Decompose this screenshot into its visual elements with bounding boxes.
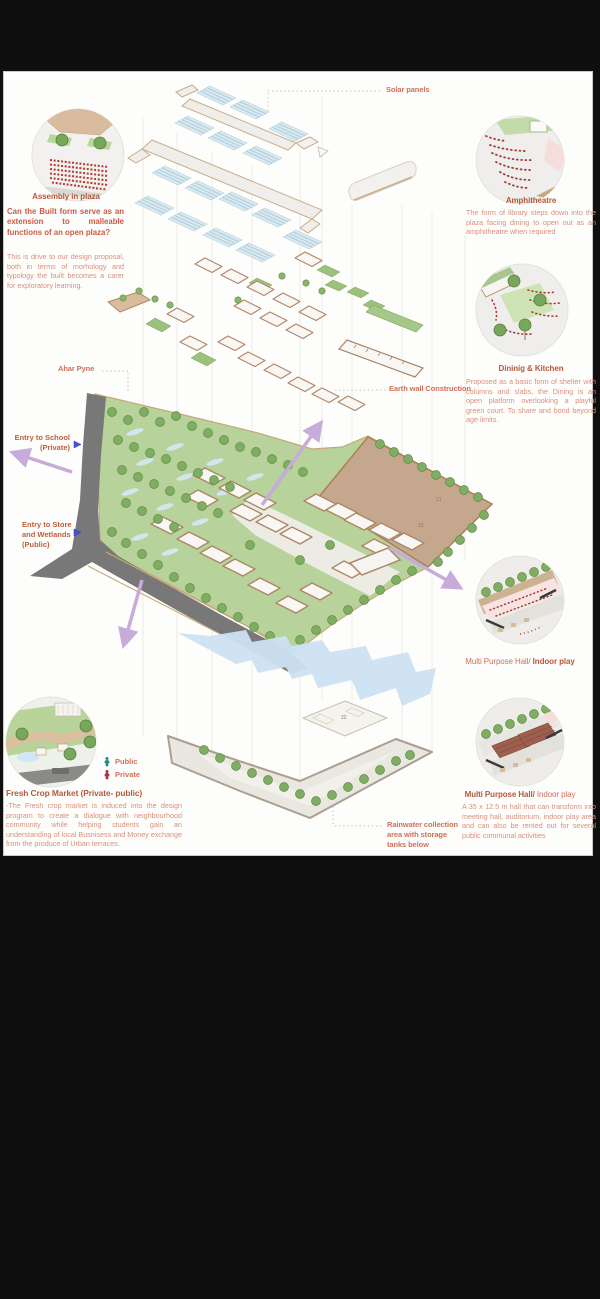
assembly-question: Can the Built form serve as an extension… — [7, 207, 124, 238]
earth-wall-label: Earth wall Construction — [389, 384, 471, 394]
vignette-dining — [476, 264, 568, 356]
mph-top-caption-bold: Indoor play — [531, 657, 575, 666]
ahar-pyne-label: Ahar Pyne — [58, 364, 94, 374]
fresh-market-body: -The Fresh crop market is induced into t… — [6, 801, 182, 849]
entry-school-label: Entry to School (Private) — [10, 433, 70, 453]
assembly-title: Assembly in plaza — [8, 192, 124, 201]
vignette-mph-bottom — [476, 698, 570, 786]
legend: Public Private — [103, 755, 140, 781]
entry-school-line1: Entry to School — [10, 433, 70, 443]
entry-school-line2: (Private) — [10, 443, 70, 453]
mph-top-caption: Multi Purpose Hall/ Indoor play — [440, 657, 600, 666]
roof-layer — [128, 85, 416, 262]
amphitheatre-body: The form of library steps down into the … — [466, 208, 596, 237]
dining-title: Dininig & Kitchen — [466, 364, 596, 373]
vignette-mph-top — [476, 556, 566, 644]
legend-private: Private — [103, 768, 140, 781]
legend-public-label: Public — [115, 757, 138, 766]
legend-public: Public — [103, 755, 140, 768]
dining-body: Proposed as a basic form of shelter with… — [466, 377, 596, 425]
mph-top-caption-regular: Multi Purpose Hall/ — [465, 657, 530, 666]
vignette-amphitheatre — [476, 116, 566, 204]
site-plan-layer: 21 22 14 — [30, 393, 492, 674]
fresh-market-title: Fresh Crop Market (Private- public) — [6, 788, 206, 798]
mph-bottom-caption-bold: Multi Purpose Hall/ — [465, 790, 535, 799]
entry-store-line1: Entry to Store — [22, 520, 86, 530]
vignette-assembly — [30, 98, 132, 201]
public-person-icon — [103, 756, 111, 767]
entry-store-label: Entry to Store and Wetlands (Public) — [22, 520, 86, 550]
svg-text:22: 22 — [418, 523, 424, 529]
entry-store-line3: (Public) — [22, 540, 86, 550]
mph-bottom-caption-regular: Indoor play — [535, 790, 576, 799]
rainwater-label: Rainwater collection area with storage t… — [387, 820, 467, 849]
rainwater-line1: Rainwater collection — [387, 820, 467, 830]
legend-private-label: Private — [115, 770, 140, 779]
entry-store-line2: and Wetlands — [22, 530, 86, 540]
rainwater-line2: area with storage — [387, 830, 467, 840]
private-person-icon — [103, 769, 111, 780]
mph-bottom-caption: Multi Purpose Hall/ Indoor play — [440, 790, 600, 799]
vignette-fresh-market — [6, 697, 96, 788]
svg-text:22: 22 — [341, 715, 347, 721]
exploded-axonometric-illustration: 21 22 14 — [3, 71, 593, 856]
amphitheatre-title: Amphitheatre — [466, 196, 596, 205]
rainwater-line3: tanks below — [387, 840, 467, 850]
svg-text:21: 21 — [436, 497, 442, 503]
floor-plan-layer — [108, 252, 423, 411]
mph-bottom-body: A 35 x 12.5 m hall that can transform in… — [462, 802, 596, 840]
assembly-body: This is drive to our design proposal, bo… — [7, 252, 124, 290]
solar-panels-label: Solar panels — [386, 85, 429, 95]
page: 21 22 14 — [0, 0, 600, 1299]
